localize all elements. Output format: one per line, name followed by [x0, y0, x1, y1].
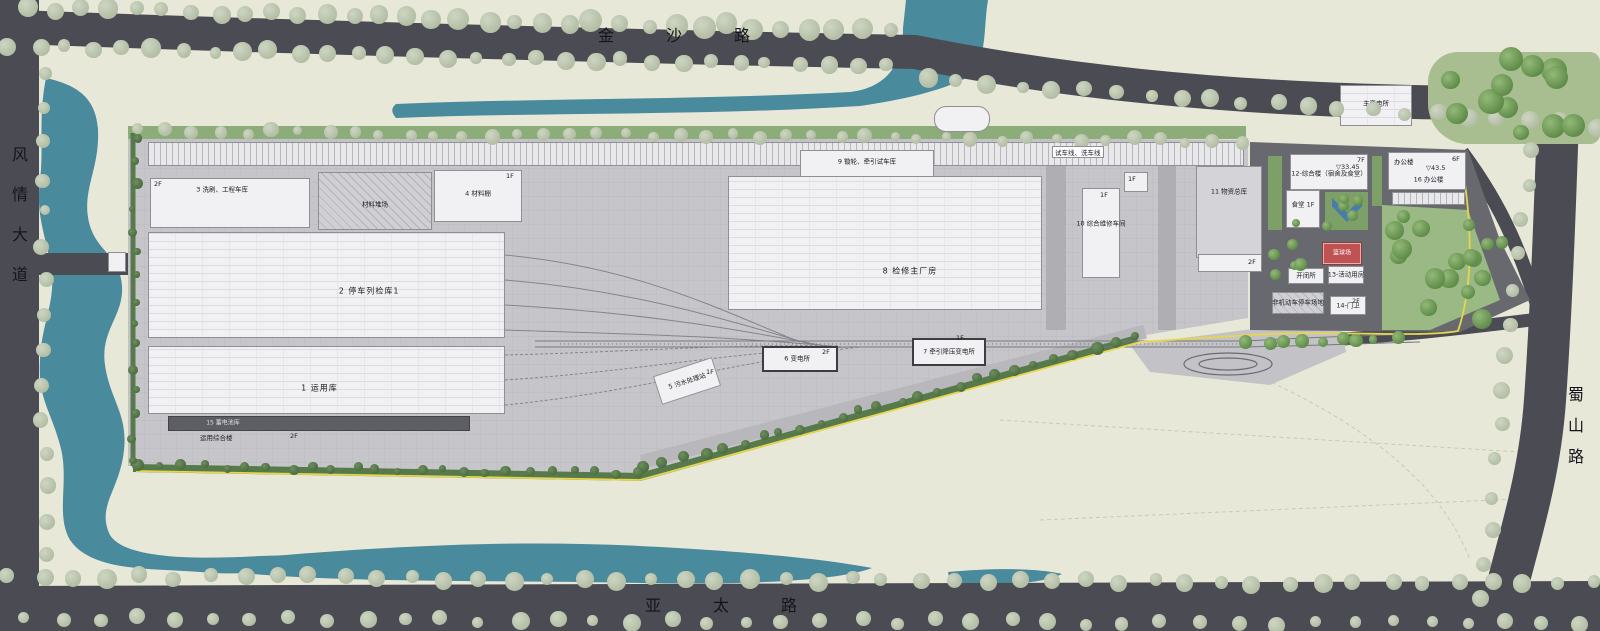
annotation-tag: ▽43.5	[1426, 164, 1445, 172]
building-label-traction-substation: 7 牵引降压变电所	[923, 348, 975, 355]
tree	[972, 373, 982, 383]
tree	[1152, 614, 1166, 628]
tree	[700, 617, 713, 630]
building-traction-substation: 7 牵引降压变电所	[912, 338, 986, 366]
tree	[1511, 246, 1525, 260]
tree	[962, 613, 979, 630]
tree	[1283, 577, 1298, 592]
tree	[40, 447, 54, 461]
tree	[129, 457, 137, 465]
tree	[1146, 90, 1158, 102]
tree	[1234, 97, 1247, 110]
building-label-switch-station: 开闭所	[1296, 272, 1316, 279]
tree	[129, 206, 135, 212]
tree	[480, 12, 501, 33]
tree	[421, 10, 440, 29]
building-comprehensive-maintenance-workshop: 10 综合维修车间	[1082, 188, 1120, 278]
tree	[35, 174, 50, 189]
building-office-parking	[1392, 192, 1465, 205]
tree	[36, 343, 51, 358]
tree	[1349, 334, 1362, 347]
tree	[40, 477, 57, 494]
tree	[947, 573, 962, 588]
building-label-materials-warehouse: 11 物资总库	[1211, 188, 1247, 195]
building-west-gatehouse	[108, 252, 126, 272]
tree	[240, 462, 249, 471]
tree	[156, 462, 163, 469]
turning-loops	[1184, 353, 1272, 375]
tree	[210, 47, 222, 59]
tree	[741, 617, 752, 628]
tree	[439, 50, 457, 68]
tree	[213, 6, 231, 24]
tree	[1551, 577, 1564, 590]
tree	[1295, 334, 1309, 348]
building-label-bicycle-parking: 非机动车停车场地	[1272, 299, 1324, 306]
building-materials-warehouse: 11 物资总库	[1196, 166, 1262, 258]
building-maintenance-main-workshop: 8 检修主厂房	[728, 176, 1042, 310]
tree	[821, 56, 839, 74]
building-label-substation-6: 6 变电所	[784, 355, 810, 362]
tree	[1322, 221, 1332, 231]
annotation-tag: 2F	[154, 180, 162, 188]
building-switch-station: 开闭所	[1288, 268, 1324, 284]
tree	[1503, 318, 1518, 333]
tree	[1264, 337, 1277, 350]
tree	[1588, 575, 1600, 588]
road-label-shushan: 蜀山路	[1562, 386, 1586, 479]
tree	[1430, 104, 1447, 121]
tree	[1271, 94, 1287, 110]
building-label-canteen-annex: 食堂 1F	[1292, 202, 1315, 209]
tree	[623, 614, 641, 631]
tree	[557, 52, 575, 70]
tree	[133, 299, 140, 306]
tree	[1386, 574, 1403, 591]
tree	[1513, 125, 1529, 141]
tree	[98, 0, 118, 19]
tree	[1571, 616, 1588, 631]
tree	[1049, 354, 1058, 363]
tree	[65, 570, 82, 587]
tree	[809, 573, 828, 592]
tree	[318, 4, 338, 24]
tree	[899, 398, 907, 406]
tree	[512, 612, 530, 630]
tree	[470, 571, 486, 587]
tree	[165, 572, 180, 587]
tree	[33, 39, 50, 56]
tree	[1350, 616, 1361, 627]
tree	[1461, 285, 1475, 299]
tree	[1481, 238, 1494, 251]
tree	[1392, 239, 1412, 259]
tree	[590, 127, 602, 139]
building-bicycle-parking: 非机动车停车场地	[1272, 292, 1324, 314]
tree	[40, 205, 50, 215]
tree	[289, 465, 299, 475]
building-operation-shed: 1 运用库	[148, 346, 505, 414]
tree	[541, 573, 553, 585]
tree	[1127, 130, 1142, 145]
building-label-parking-inspection-shed-1: 2 停车列检库1	[339, 287, 400, 296]
annotation-tag: 2F	[822, 348, 830, 356]
tree	[1080, 619, 1092, 631]
tree	[607, 572, 626, 591]
annotation-tag: 6F	[1452, 155, 1460, 163]
tree	[1180, 138, 1190, 148]
tree	[242, 613, 256, 627]
tree	[773, 615, 788, 630]
annotation-tag: 1F	[1100, 191, 1108, 199]
tree	[1463, 249, 1479, 265]
tree	[1111, 337, 1121, 347]
building-label-office-building: 16 办公楼	[1414, 176, 1444, 183]
tree	[131, 320, 138, 327]
tree	[133, 248, 141, 256]
tree	[177, 43, 191, 57]
tree	[1239, 335, 1253, 349]
tree	[418, 465, 428, 475]
tree	[701, 448, 713, 460]
tree	[919, 68, 938, 87]
tree	[1042, 81, 1060, 99]
tree	[204, 568, 217, 581]
tree	[1353, 195, 1364, 206]
tree	[734, 55, 749, 70]
tree	[533, 13, 553, 33]
building-activity-room: 13-活动用房	[1328, 266, 1364, 284]
tree	[1506, 284, 1519, 297]
tree	[1588, 119, 1600, 137]
tree	[980, 574, 997, 591]
tree	[1115, 617, 1129, 631]
tree	[1091, 342, 1104, 355]
tree	[989, 369, 1000, 380]
tree	[891, 132, 900, 141]
tree	[1463, 219, 1475, 231]
tree	[158, 122, 172, 136]
annotation-tag: 办公楼	[1394, 156, 1414, 166]
tree	[1067, 350, 1078, 361]
tree	[470, 52, 482, 64]
tree	[129, 608, 146, 625]
tree	[131, 157, 139, 165]
tree	[1491, 74, 1513, 96]
tree	[1513, 212, 1528, 227]
tree	[134, 134, 142, 142]
tree	[1176, 574, 1194, 592]
tree	[928, 611, 943, 626]
tree	[590, 466, 599, 475]
tree	[500, 466, 511, 477]
tree	[354, 462, 363, 471]
tree	[399, 613, 411, 625]
tree	[167, 612, 184, 629]
tree	[728, 128, 739, 139]
building-label-material-shed: 4 材料棚	[465, 190, 491, 197]
tree	[1006, 612, 1020, 626]
tree	[406, 48, 424, 66]
building-label-maintenance-main-workshop: 8 检修主厂房	[883, 266, 938, 275]
tree	[1441, 71, 1460, 90]
road-label-jinsha: 金沙路	[598, 22, 802, 46]
tree	[215, 126, 228, 139]
tree	[370, 5, 389, 24]
annotation-tag: 2F	[1248, 258, 1256, 266]
building-material-yard: 材料堆场	[318, 172, 432, 230]
tree	[1521, 55, 1543, 77]
tree	[263, 122, 279, 138]
tree	[1412, 220, 1429, 237]
tree	[645, 573, 657, 585]
tree	[370, 464, 380, 474]
tree	[480, 469, 488, 477]
tree	[85, 42, 101, 58]
tree	[1076, 81, 1092, 97]
tree	[1485, 573, 1502, 590]
tree	[1499, 47, 1523, 71]
tree	[561, 15, 580, 34]
tree	[502, 53, 516, 67]
tree	[58, 39, 70, 51]
tree	[505, 572, 524, 591]
tree	[526, 467, 535, 476]
tree	[1012, 571, 1029, 588]
annotation-tag: 1F	[1128, 175, 1136, 183]
tree	[1292, 219, 1300, 227]
tree	[485, 129, 500, 144]
tree	[154, 2, 168, 16]
tree	[428, 131, 439, 142]
tree	[977, 75, 996, 94]
building-label-washing-engineering-garage: 3 洗刷、工程车库	[196, 186, 248, 193]
tree	[406, 130, 417, 141]
tree	[846, 571, 860, 585]
tree	[57, 613, 71, 627]
tree	[1205, 134, 1219, 148]
building-label-complex-building: 12-综合楼（宿舍及食堂）	[1291, 170, 1367, 177]
tree	[648, 132, 659, 143]
tree	[263, 3, 280, 20]
tree	[350, 126, 362, 138]
tree	[233, 42, 252, 61]
tree	[705, 572, 723, 590]
tree	[576, 570, 594, 588]
tree	[1318, 337, 1328, 347]
tree	[472, 617, 483, 628]
tree	[36, 134, 50, 148]
tree	[1009, 365, 1020, 376]
building-battery-shed: 15 蓄电池库	[168, 416, 470, 431]
tree	[563, 128, 575, 140]
tree	[760, 430, 770, 440]
tree	[949, 74, 962, 87]
building-label-material-yard: 材料堆场	[362, 202, 388, 209]
tree	[587, 615, 598, 626]
tree	[633, 467, 643, 477]
tree	[134, 271, 141, 278]
tree	[1242, 576, 1260, 594]
road-label-yatai: 亚太路	[645, 592, 849, 616]
tree	[1174, 90, 1191, 107]
tree	[39, 272, 54, 287]
tree	[132, 409, 141, 418]
tree	[1215, 576, 1228, 589]
tree	[874, 573, 888, 587]
tree	[1020, 131, 1033, 144]
tree	[997, 136, 1008, 147]
tree	[183, 5, 199, 21]
tree	[1366, 102, 1381, 117]
tree	[871, 401, 881, 411]
tree	[261, 463, 270, 472]
annotation-tag: ▽33.45	[1336, 163, 1360, 171]
tree	[1496, 236, 1509, 249]
tree	[258, 40, 277, 59]
annotation-tag: 1F	[956, 334, 964, 342]
tree	[1201, 89, 1219, 107]
tree	[1109, 85, 1123, 99]
tree	[175, 459, 186, 470]
tree	[18, 612, 29, 623]
tree	[675, 55, 693, 73]
tree	[352, 46, 366, 60]
tree	[1463, 618, 1474, 629]
building-wheel-lathe-test-shed: 9 镟轮、牵引试车库	[800, 150, 934, 177]
building-washing-engineering-garage: 3 洗刷、工程车库	[150, 178, 310, 228]
tree	[1513, 574, 1532, 593]
tree	[224, 465, 232, 473]
tree	[587, 53, 606, 72]
tree	[360, 611, 377, 628]
annotation-tag: 试车线、洗车线	[1052, 146, 1104, 158]
tree	[1044, 573, 1060, 589]
tree	[243, 129, 254, 140]
tree	[1420, 299, 1436, 315]
tree	[397, 6, 417, 26]
tree	[677, 571, 694, 588]
tree	[528, 50, 544, 66]
tree	[644, 55, 660, 71]
tree	[37, 569, 54, 586]
building-label-operation-shed: 1 运用库	[301, 383, 338, 392]
tree	[780, 129, 792, 141]
tree	[1545, 66, 1568, 89]
tree	[1277, 335, 1290, 348]
tree	[1523, 179, 1536, 192]
building-gatehouse: 14-门卫	[1330, 296, 1366, 315]
tree	[47, 3, 64, 20]
building-label-comprehensive-maintenance-workshop: 10 综合维修车间	[1076, 220, 1125, 227]
building-label-wheel-lathe-test-shed: 9 镟轮、牵引试车库	[838, 159, 896, 166]
tree	[1287, 239, 1298, 250]
building-basketball-court: 篮球场	[1322, 242, 1362, 265]
tree	[1039, 613, 1056, 630]
tree	[913, 573, 930, 590]
tree	[1446, 103, 1468, 125]
tree	[1425, 268, 1446, 289]
building-label-sewage-treatment: 5 污水处理站	[668, 373, 707, 392]
annotation-tag: 1F	[706, 368, 714, 376]
tree	[963, 132, 978, 147]
building-label-activity-room: 13-活动用房	[1328, 271, 1365, 278]
tree	[1472, 309, 1492, 329]
tree	[435, 572, 452, 589]
tree	[141, 38, 161, 58]
tree	[376, 46, 394, 64]
road-label-fengqing: 风情大道	[6, 146, 30, 306]
tree	[0, 568, 14, 583]
tree	[293, 126, 302, 135]
building-bus-bay	[934, 106, 990, 132]
tree	[94, 614, 107, 627]
tree	[1017, 82, 1029, 94]
tree	[33, 412, 48, 427]
annotation-tag: 运用综合楼	[200, 432, 233, 442]
tree	[132, 178, 142, 188]
tree	[201, 460, 209, 468]
site-plan-canvas: 3 洗刷、工程车库材料堆场4 材料棚2 停车列检库11 运用库15 蓄电池库8 …	[0, 0, 1600, 631]
tree	[39, 67, 51, 79]
tree	[1474, 270, 1491, 287]
building-label-basketball-court: 篮球场	[1333, 250, 1351, 257]
tree	[1294, 258, 1307, 271]
building-parking-inspection-shed-1: 2 停车列检库1	[148, 232, 505, 338]
tree	[856, 611, 871, 626]
tree	[326, 465, 335, 474]
tree	[1427, 616, 1438, 627]
tree	[753, 131, 767, 145]
tree	[406, 570, 419, 583]
tree	[1369, 335, 1378, 344]
tree	[128, 228, 137, 237]
tree	[184, 126, 198, 140]
tree	[131, 566, 148, 583]
building-label-battery-shed: 15 蓄电池库	[206, 420, 240, 427]
tree	[850, 58, 866, 74]
tree	[132, 339, 140, 347]
tree	[308, 462, 318, 472]
tree	[1268, 617, 1285, 631]
annotation-tag: 2F	[1352, 297, 1360, 305]
tree	[613, 51, 628, 66]
tree	[758, 57, 769, 68]
tree	[1397, 210, 1410, 223]
tree	[113, 40, 129, 56]
annotation-tag: 2F	[290, 432, 298, 440]
tree	[891, 618, 904, 631]
tree	[837, 131, 849, 143]
tree	[884, 23, 898, 37]
tree	[507, 15, 522, 30]
annotation-tag: 1F	[506, 172, 514, 180]
tree	[207, 613, 219, 625]
tree	[1232, 616, 1247, 631]
tree	[1329, 101, 1344, 116]
tree	[1300, 97, 1318, 115]
